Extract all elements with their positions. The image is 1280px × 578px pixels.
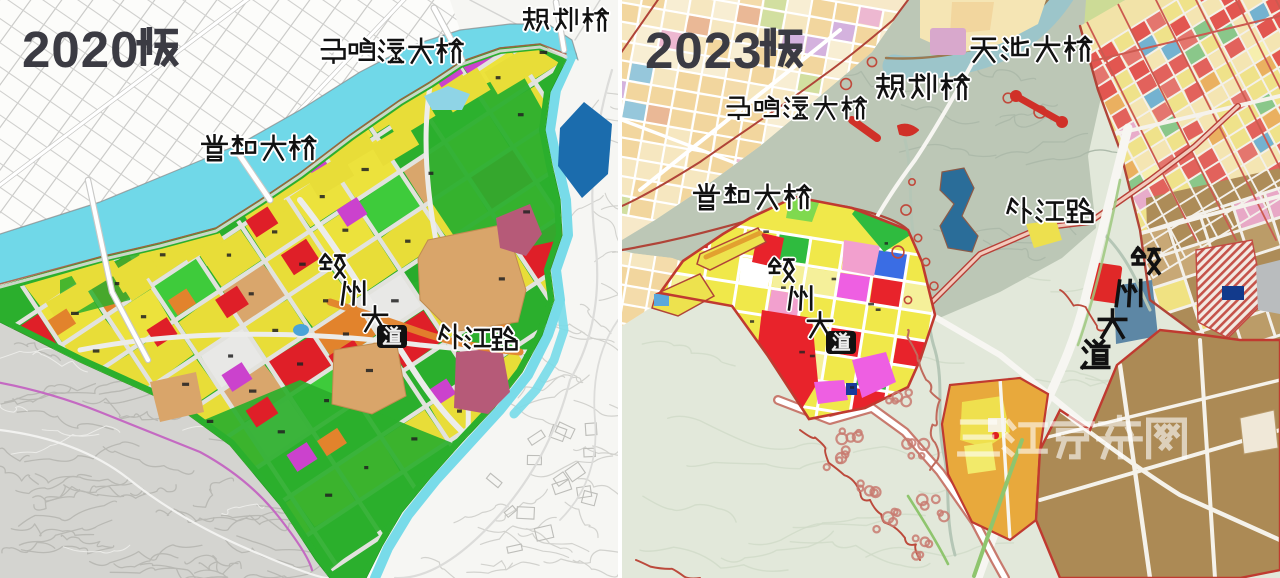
svg-text:2023: 2023 (645, 22, 762, 79)
svg-text:2020: 2020 (22, 21, 139, 78)
